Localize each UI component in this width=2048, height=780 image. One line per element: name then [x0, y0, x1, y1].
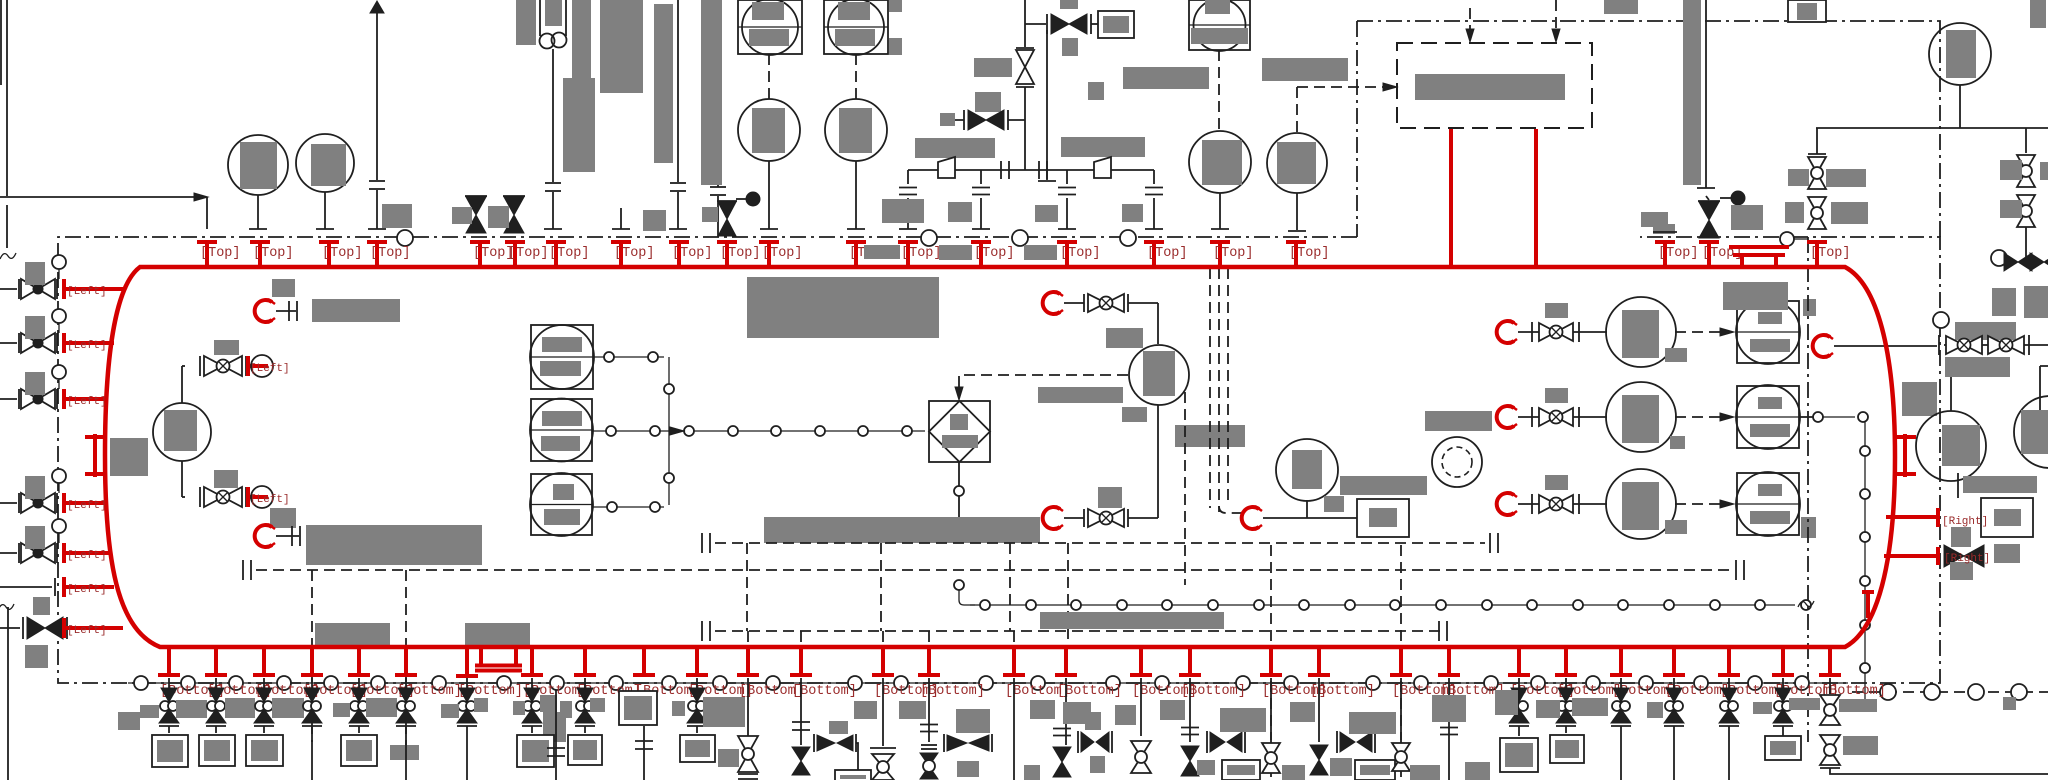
svg-text:[Left]: [Left]: [250, 363, 290, 375]
svg-text:[Top]: [Top]: [370, 246, 411, 261]
svg-text:[Top]: [Top]: [549, 246, 590, 261]
svg-text:[Top]: [Top]: [672, 246, 713, 261]
svg-text:[Left]: [Left]: [250, 494, 290, 506]
svg-text:[Top]: [Top]: [1213, 246, 1254, 261]
svg-text:[Top]: [Top]: [508, 246, 549, 261]
svg-text:[Left]: [Left]: [67, 584, 107, 596]
svg-text:[Top]: [Top]: [200, 246, 241, 261]
svg-text:[Top]: [Top]: [1658, 246, 1699, 261]
svg-text:[Left]: [Left]: [67, 396, 107, 408]
svg-text:[Top]: [Top]: [720, 246, 761, 261]
svg-text:[Top]: [Top]: [974, 246, 1015, 261]
svg-text:[Top]: [Top]: [1289, 246, 1330, 261]
svg-text:[Left]: [Left]: [67, 500, 107, 512]
svg-text:[Right]: [Right]: [1942, 516, 1988, 528]
svg-text:[Left]: [Left]: [67, 550, 107, 562]
svg-text:[Top]: [Top]: [762, 246, 803, 261]
svg-text:[Top]: [Top]: [614, 246, 655, 261]
svg-text:[Top]: [Top]: [901, 246, 942, 261]
svg-text:[Left]: [Left]: [67, 340, 107, 352]
svg-text:[Top]: [Top]: [322, 246, 363, 261]
svg-text:[Top]: [Top]: [1147, 246, 1188, 261]
svg-text:[Top]: [Top]: [253, 246, 294, 261]
svg-text:[Top]: [Top]: [1060, 246, 1101, 261]
svg-text:[Top]: [Top]: [1810, 246, 1851, 261]
svg-text:[Left]: [Left]: [67, 286, 107, 298]
svg-text:[Right]: [Right]: [1944, 553, 1990, 565]
svg-text:[Left]: [Left]: [67, 625, 107, 637]
